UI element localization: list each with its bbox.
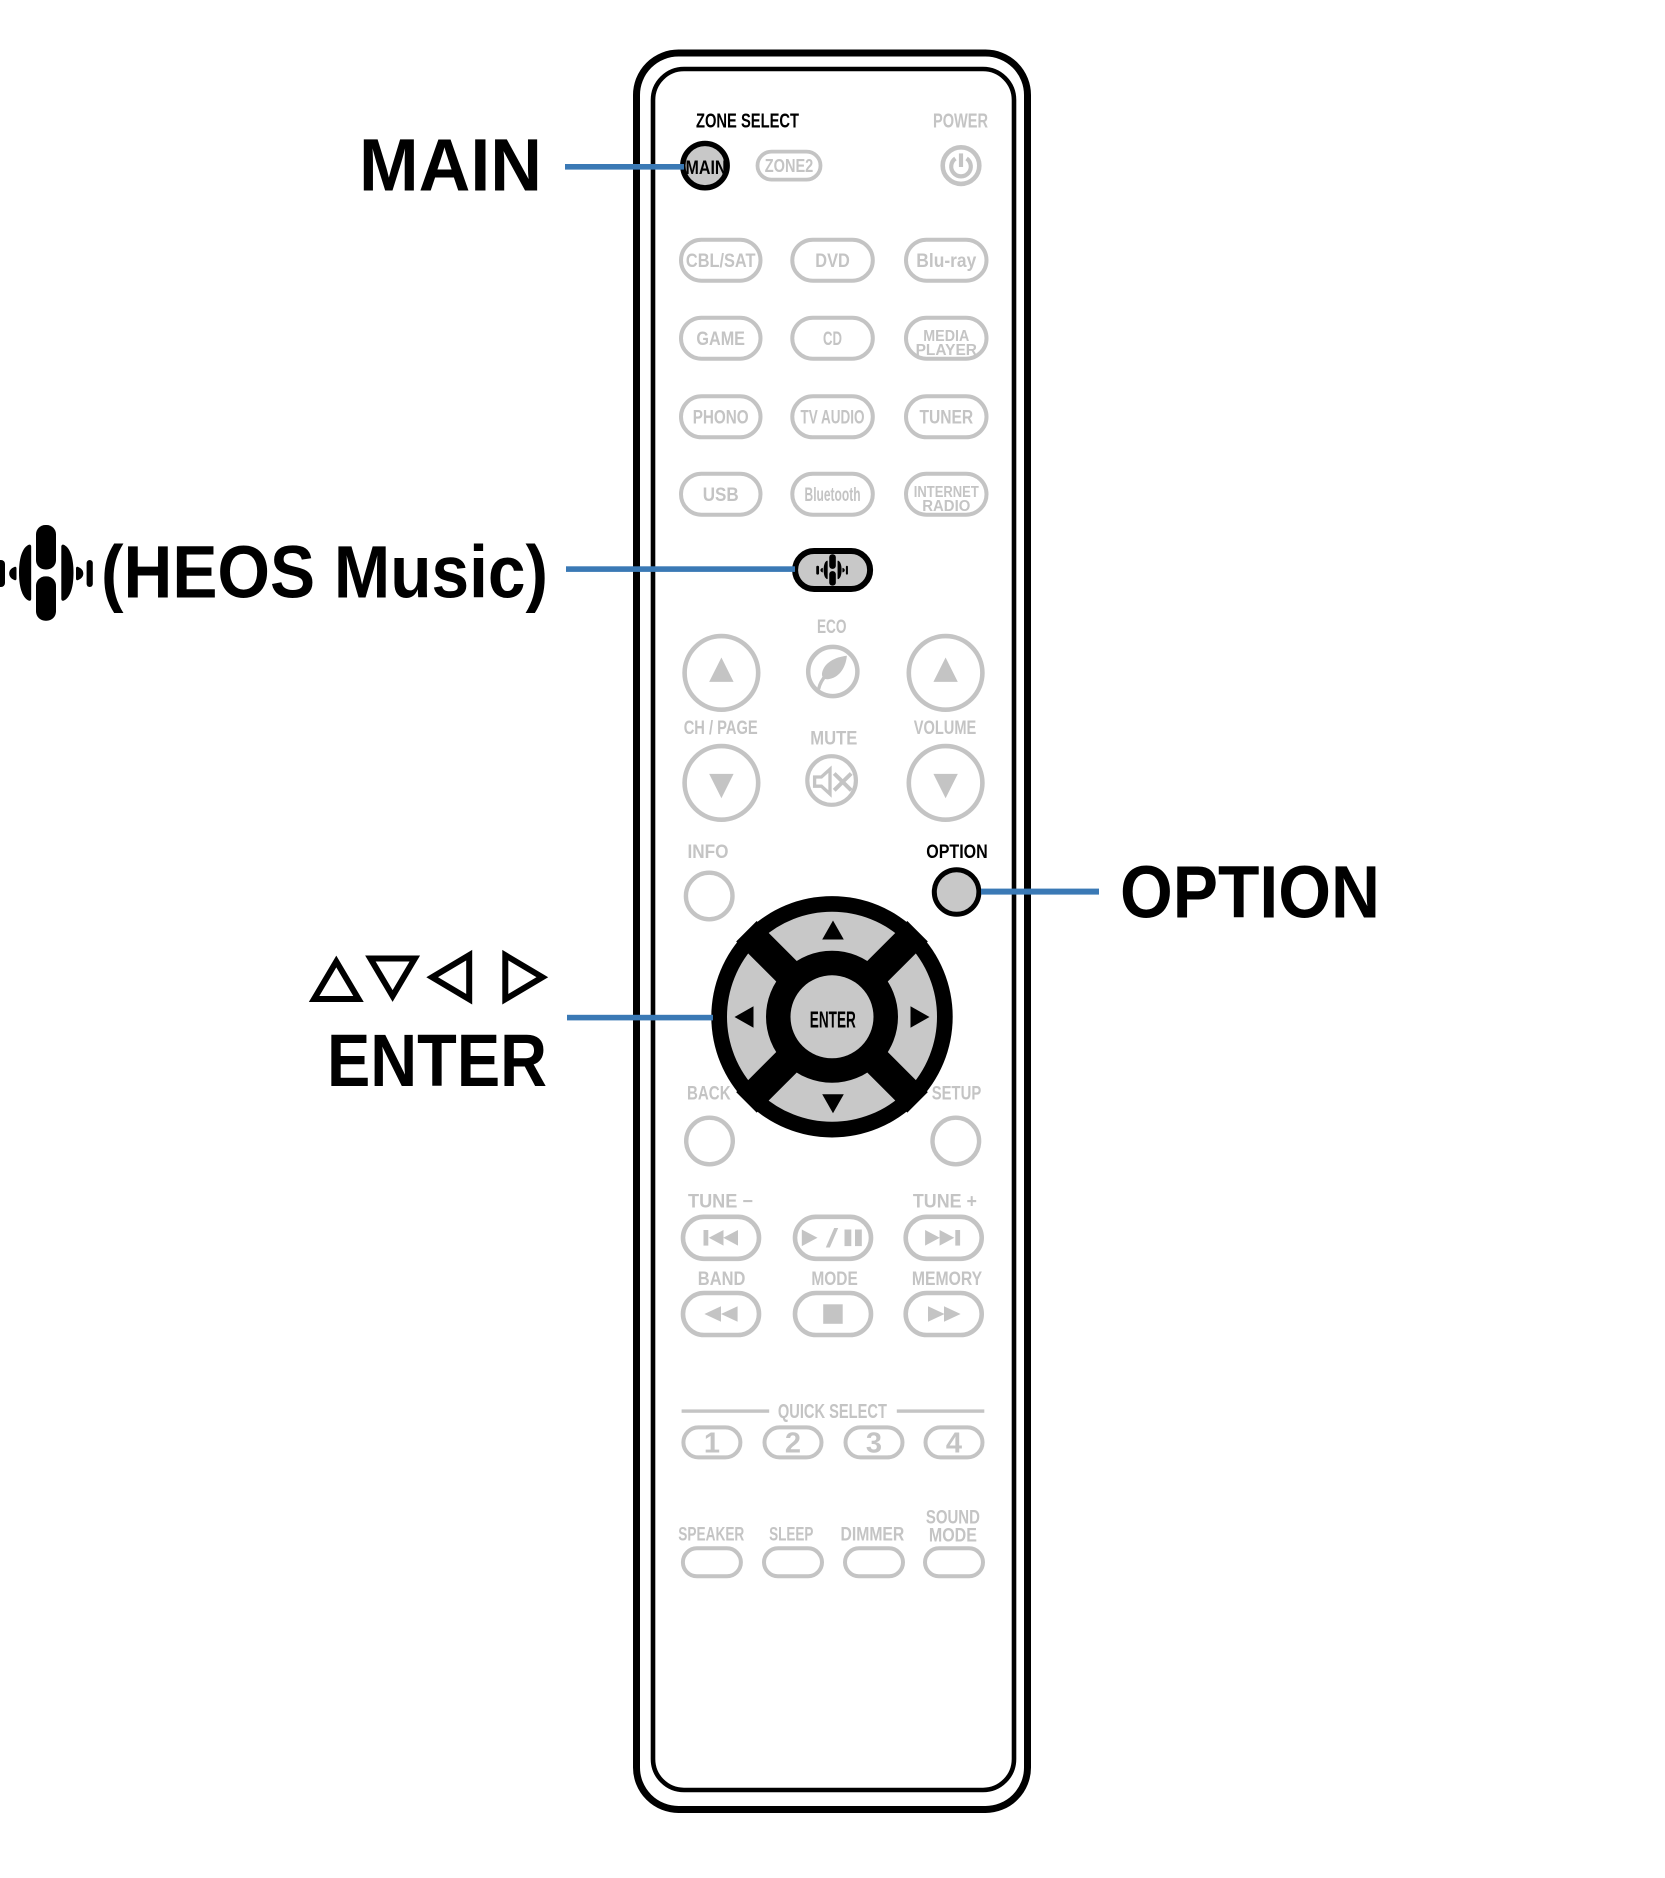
svg-text:PHONO: PHONO <box>693 408 749 429</box>
svg-text:2: 2 <box>785 1428 801 1460</box>
svg-text:ENTER: ENTER <box>327 1019 547 1102</box>
svg-text:CD: CD <box>823 329 842 350</box>
svg-text:(HEOS Music): (HEOS Music) <box>101 530 548 613</box>
svg-text:TV AUDIO: TV AUDIO <box>801 408 865 429</box>
svg-text:OPTION: OPTION <box>926 842 988 863</box>
svg-text:MUTE: MUTE <box>810 728 857 749</box>
svg-text:INFO: INFO <box>688 842 729 863</box>
svg-text:DVD: DVD <box>815 251 850 272</box>
svg-text:SLEEP: SLEEP <box>769 1525 814 1546</box>
svg-text:TUNER: TUNER <box>919 408 973 429</box>
svg-text:ECO: ECO <box>817 617 847 638</box>
svg-text:USB: USB <box>703 485 739 506</box>
svg-text:OPTION: OPTION <box>1120 851 1380 934</box>
svg-text:RADIO: RADIO <box>922 498 970 515</box>
svg-text:MODE: MODE <box>811 1269 857 1290</box>
svg-text:QUICK SELECT: QUICK SELECT <box>778 1401 887 1423</box>
svg-text:MEMORY: MEMORY <box>912 1269 983 1290</box>
svg-text:Blu-ray: Blu-ray <box>916 251 976 272</box>
svg-text:1: 1 <box>704 1428 720 1460</box>
svg-text:CBL/SAT: CBL/SAT <box>686 251 756 272</box>
svg-text:3: 3 <box>866 1428 882 1460</box>
svg-text:MODE: MODE <box>929 1526 977 1547</box>
svg-text:ZONE2: ZONE2 <box>765 156 814 176</box>
svg-text:VOLUME: VOLUME <box>914 718 977 739</box>
svg-text:ZONE SELECT: ZONE SELECT <box>696 111 799 133</box>
svg-text:MAIN: MAIN <box>686 158 727 179</box>
svg-text:ENTER: ENTER <box>810 1007 856 1033</box>
svg-text:SPEAKER: SPEAKER <box>678 1525 744 1546</box>
svg-text:SETUP: SETUP <box>932 1084 982 1105</box>
svg-text:POWER: POWER <box>933 111 988 133</box>
svg-text:4: 4 <box>946 1428 962 1460</box>
svg-text:PLAYER: PLAYER <box>916 342 978 359</box>
svg-text:Bluetooth: Bluetooth <box>805 485 861 506</box>
svg-text:GAME: GAME <box>696 329 745 350</box>
svg-text:TUNE +: TUNE + <box>913 1192 977 1213</box>
svg-text:BACK: BACK <box>687 1084 731 1105</box>
svg-text:DIMMER: DIMMER <box>841 1525 905 1546</box>
svg-text:TUNE −: TUNE − <box>688 1192 753 1213</box>
svg-text:BAND: BAND <box>698 1269 746 1290</box>
svg-text:CH / PAGE: CH / PAGE <box>684 718 758 739</box>
svg-text:MAIN: MAIN <box>359 123 542 206</box>
